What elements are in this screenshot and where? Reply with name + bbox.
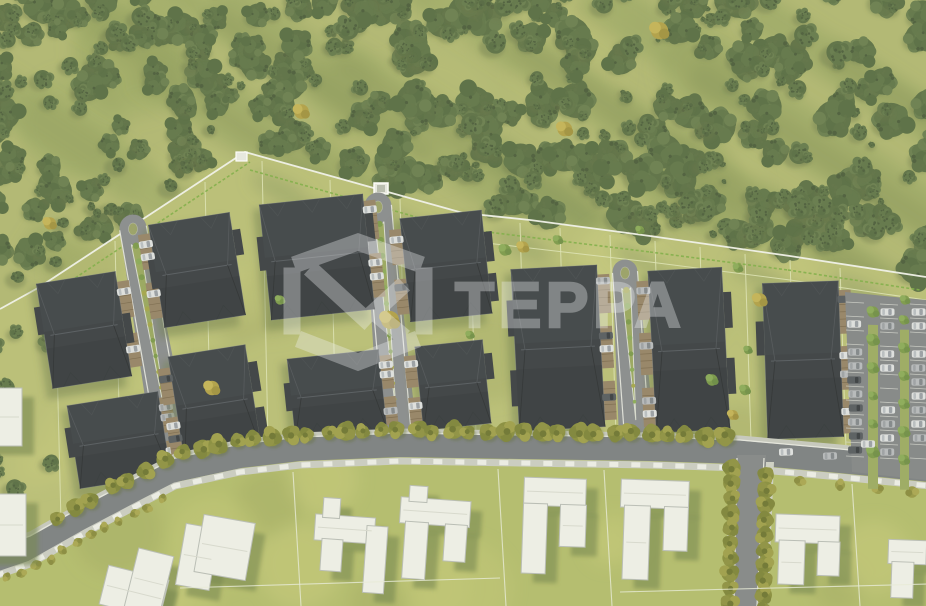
svg-text:ТЕРРА: ТЕРРА	[455, 269, 685, 341]
